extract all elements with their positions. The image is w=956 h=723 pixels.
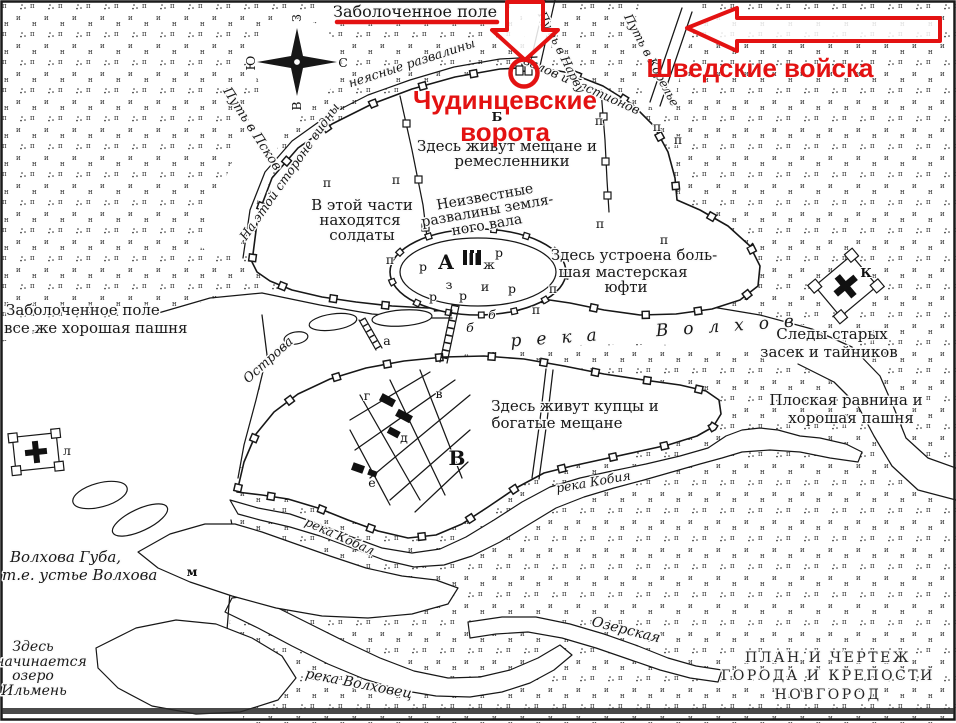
letter-a: а [383, 333, 391, 348]
letter-r: р [429, 289, 437, 304]
letter-p: п [323, 175, 331, 190]
label-swamp-top: Заболоченное поле [333, 2, 497, 21]
gate-label-line1: Чудинцевские [413, 85, 597, 115]
gate-label-line2: ворота [460, 117, 550, 147]
letter-b: б [466, 320, 474, 335]
letter-d: д [400, 430, 408, 445]
letter-e: е [368, 475, 375, 490]
label-plain-2: хорошая пашня [788, 409, 914, 427]
compass-east: В [289, 101, 304, 110]
letter-p: п [549, 281, 557, 296]
letter-p: п [392, 172, 400, 187]
letter-K: К [860, 265, 872, 280]
label-lake-1: Здесь [12, 639, 53, 655]
letter-m: м [187, 564, 198, 579]
label-traces-1: Следы старых [776, 325, 888, 343]
compass-west: З [289, 14, 304, 22]
label-workshop-1: Здесь устроена боль- [551, 246, 717, 264]
letter-i: и [481, 279, 489, 294]
letter-g: г [364, 388, 371, 403]
bottom-scan-edge [2, 708, 954, 714]
compass-north: С [338, 55, 348, 70]
letter-p: п [596, 216, 604, 231]
label-plain-1: Плоская равнина и [769, 391, 922, 409]
letter-A: А [438, 250, 455, 274]
novgorod-map: п и н [0, 0, 956, 723]
label-swamp-left-2: все же хорошая пашня [4, 319, 188, 337]
swedish-troops-label: Шведские войска [647, 53, 875, 83]
label-workshop-3: юфти [604, 278, 647, 296]
label-volkhov-bay-1: Волхова Губа, [9, 548, 121, 566]
label-burghers-2: ремесленники [454, 152, 569, 170]
label-swamp-left-1: Заболоченное поле [6, 301, 160, 319]
cathedral-icon [463, 250, 481, 265]
letter-p: п [386, 252, 394, 267]
label-merchants-2: богатые мещане [491, 414, 622, 432]
letter-z: з [446, 277, 453, 292]
label-title-2: ГОРОДА И КРЕПОСТИ [721, 668, 935, 684]
letter-r: р [419, 259, 427, 274]
letter-p: п [595, 113, 603, 128]
map-canvas: п и н [0, 0, 956, 723]
label-lake-4: Ильмень [0, 683, 66, 699]
letter-p: п [653, 119, 661, 134]
letter-p: п [674, 132, 682, 147]
label-volkhov-bay-2: т.е. устье Волхова [2, 566, 157, 584]
letter-p: п [660, 232, 668, 247]
label-title-1: ПЛАН И ЧЕРТЕЖ [745, 650, 911, 666]
letter-V: В [449, 446, 466, 470]
letter-v-small: в [435, 386, 442, 401]
label-title-3: НОВГОРОД [774, 687, 881, 703]
fortress-icon-west [8, 428, 64, 475]
label-soldiers-3: солдаты [329, 226, 394, 244]
label-traces-2: засек и тайников [760, 343, 897, 361]
letter-p: п [532, 302, 540, 317]
letter-r: р [508, 281, 516, 296]
compass-hub [293, 58, 300, 65]
letter-l: л [63, 443, 71, 458]
letter-b: б [488, 307, 496, 322]
label-merchants-1: Здесь живут купцы и [491, 397, 658, 415]
letter-r: р [459, 288, 467, 303]
compass-south: Ю [243, 55, 258, 70]
letter-r: р [495, 245, 503, 260]
letter-zh: ж [483, 257, 495, 272]
label-lake-3: озеро [12, 668, 54, 684]
